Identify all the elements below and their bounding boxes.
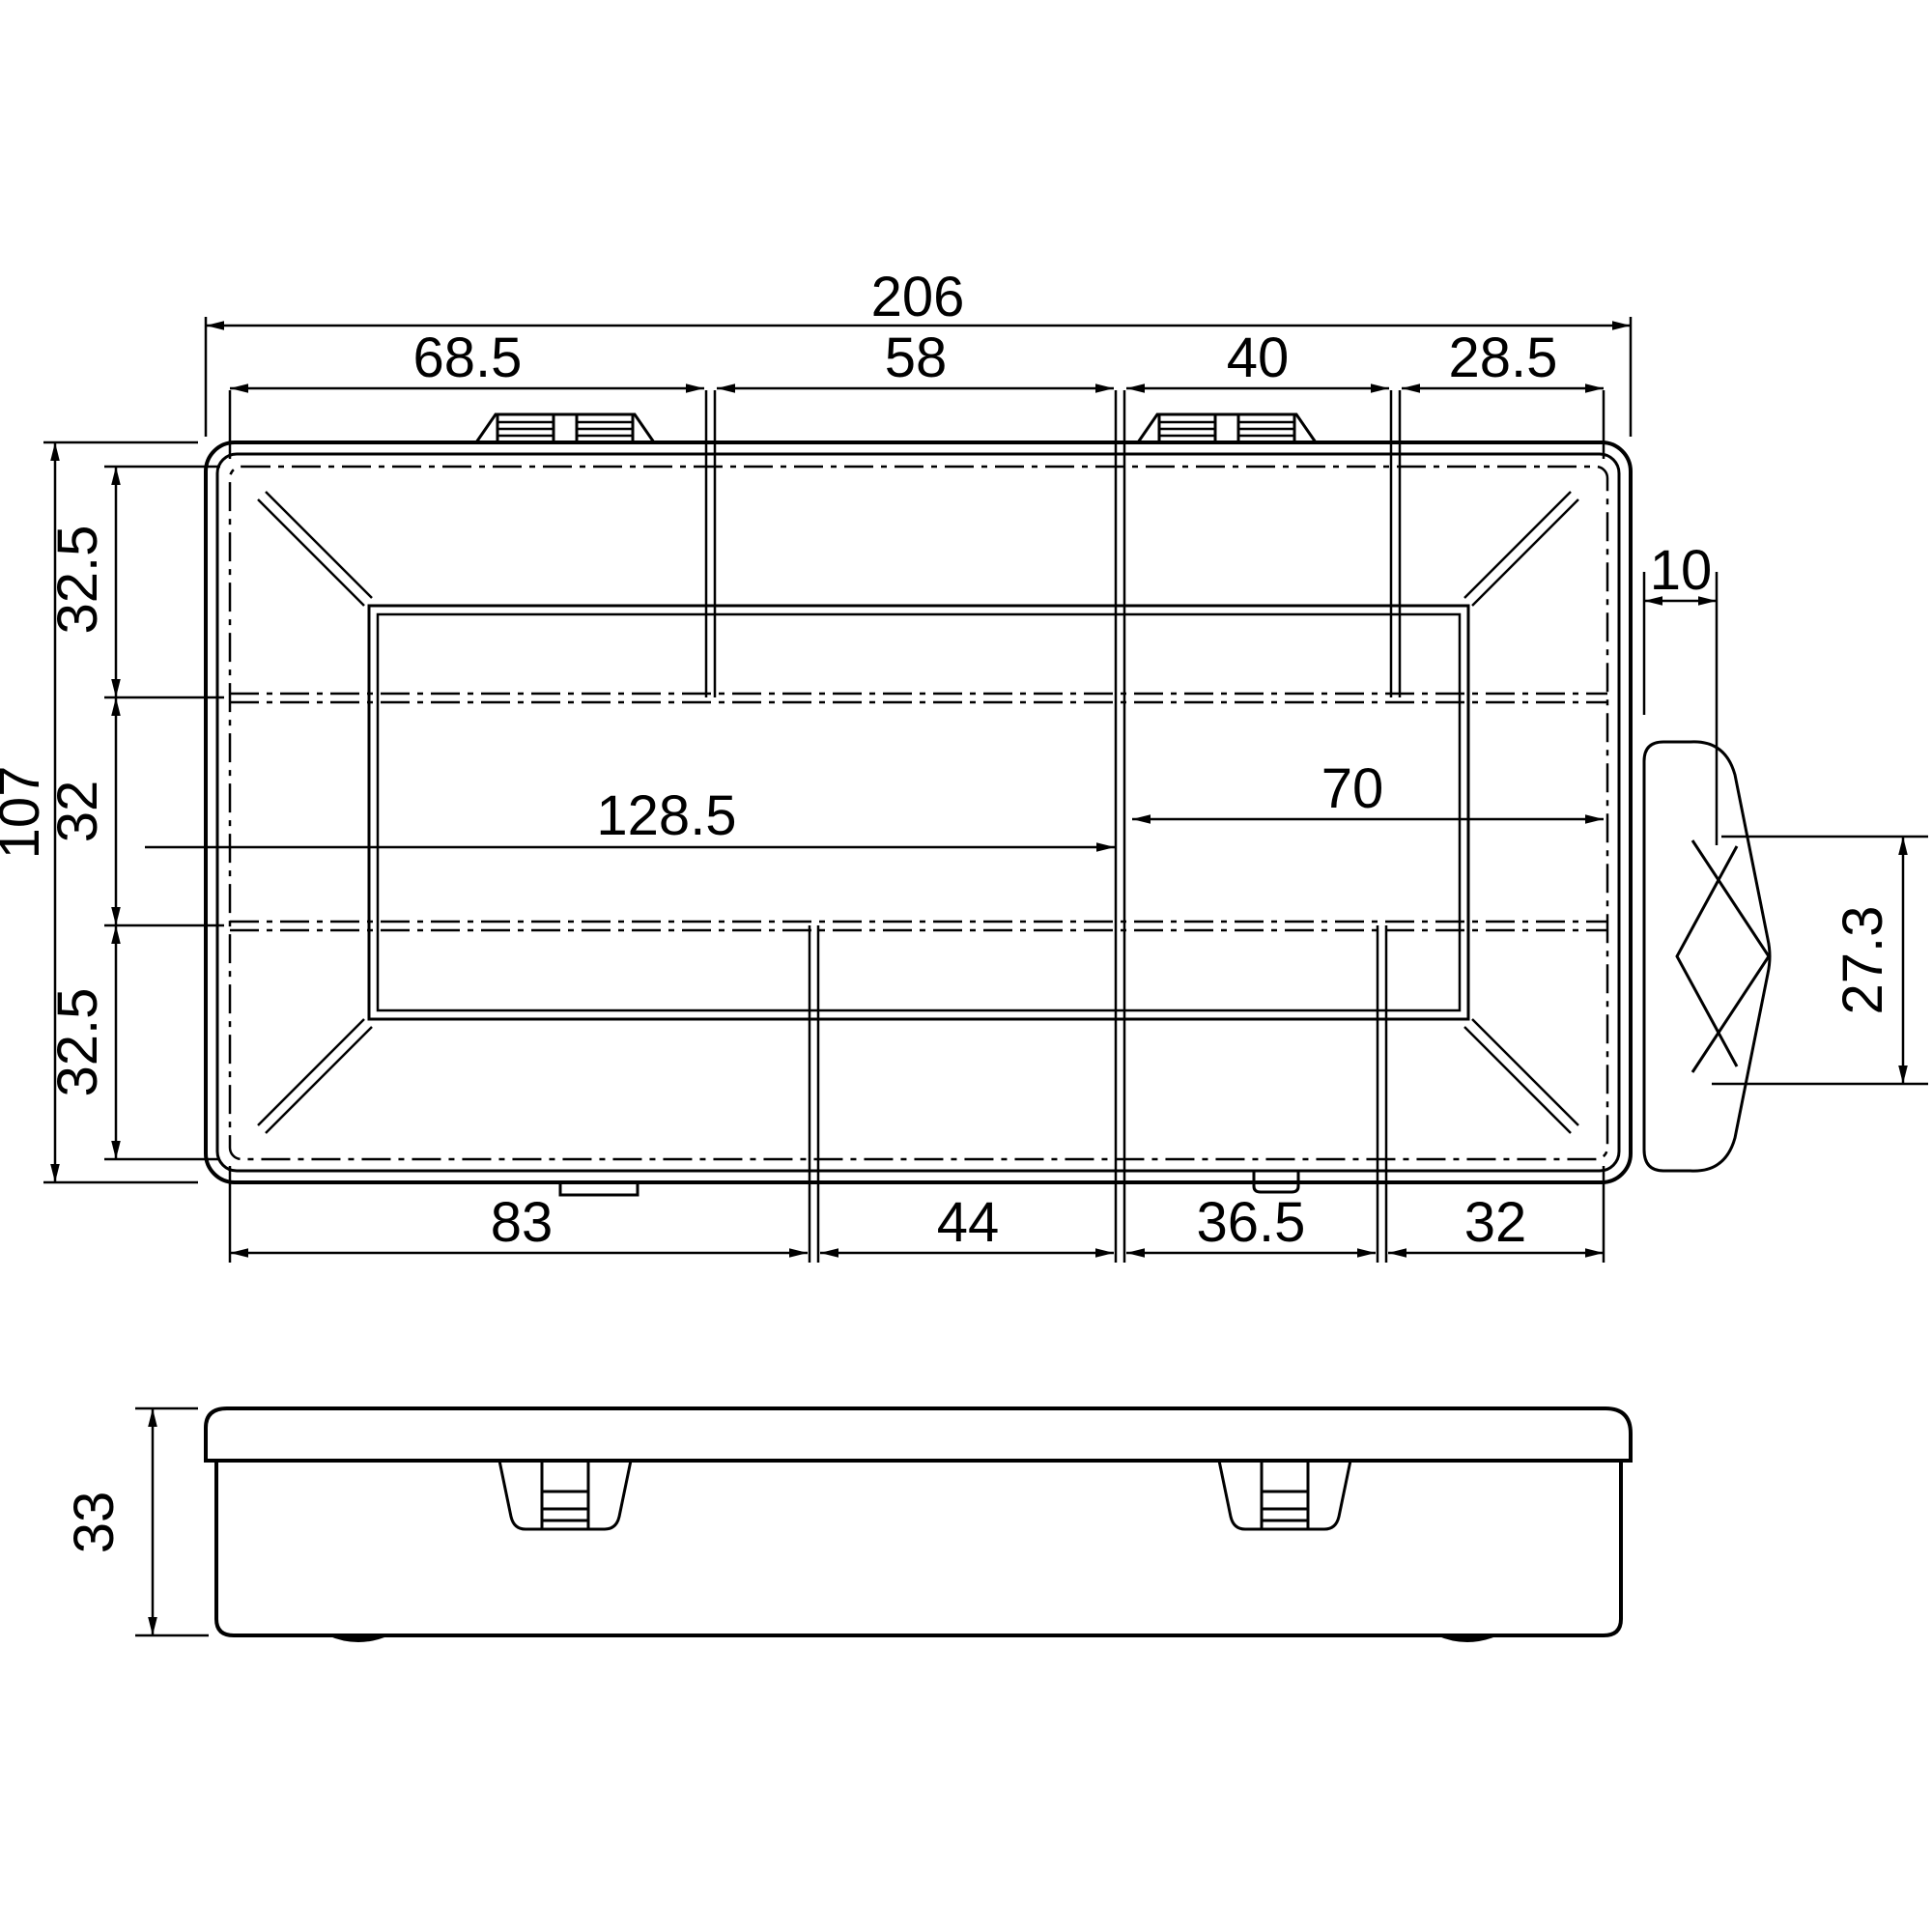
tray-floor-outline xyxy=(369,606,1468,1019)
dim-inner-width-right: 70 xyxy=(1132,757,1604,820)
dim-label-seg-40: 40 xyxy=(1227,327,1290,389)
box-lid-inner-outline xyxy=(217,454,1619,1171)
dimensions-top-view: 206 68.5 58 40 28.5 32.5 32 32.5 xyxy=(0,266,1928,1263)
dim-left-segments: 32.5 32 32.5 xyxy=(46,467,224,1159)
dim-label-seg-44: 44 xyxy=(937,1191,1000,1254)
dim-label-latch-depth: 10 xyxy=(1650,539,1713,602)
dim-label-seg-365: 36.5 xyxy=(1197,1191,1306,1254)
box-outer-outline xyxy=(206,442,1631,1182)
dim-latch-depth: 10 xyxy=(1644,539,1717,845)
dim-inner-width-left: 128.5 xyxy=(145,784,1115,847)
side-view: 33 xyxy=(63,1408,1631,1642)
dim-label-box-height: 33 xyxy=(63,1492,126,1554)
foot-left xyxy=(327,1635,389,1642)
side-clip-right xyxy=(1219,1461,1350,1529)
dim-label-seg-32: 32 xyxy=(1464,1191,1527,1254)
dim-box-height: 33 xyxy=(63,1408,209,1635)
lid-latch-top-right xyxy=(1138,414,1316,442)
lid-latch-top-left xyxy=(476,414,654,442)
side-body-outline xyxy=(216,1461,1621,1635)
dim-latch-height: 27.3 xyxy=(1712,837,1928,1084)
tray-floor-inner-outline xyxy=(378,614,1460,1010)
column-divider-lines xyxy=(706,390,1400,1263)
dim-label-seg-685: 68.5 xyxy=(413,327,523,389)
dim-label-total-depth: 107 xyxy=(0,766,51,860)
dim-label-seg-58: 58 xyxy=(885,327,948,389)
row-divider-hidden-lines xyxy=(230,694,1607,930)
side-clip-left xyxy=(499,1461,631,1529)
dim-label-inner-right: 70 xyxy=(1321,757,1384,820)
dim-label-inner-left: 128.5 xyxy=(596,784,736,847)
technical-drawing: 206 68.5 58 40 28.5 32.5 32 32.5 xyxy=(0,0,1932,1932)
side-lid-outline xyxy=(206,1408,1631,1461)
dim-label-seg-83: 83 xyxy=(491,1191,554,1254)
drawing-sheet: 206 68.5 58 40 28.5 32.5 32 32.5 xyxy=(0,0,1932,1932)
dim-label-latch-height: 27.3 xyxy=(1832,906,1894,1015)
top-view xyxy=(206,390,1770,1263)
dim-top-segments: 68.5 58 40 28.5 xyxy=(230,327,1604,459)
dim-label-seg-285: 28.5 xyxy=(1449,327,1558,389)
dim-label-total-width: 206 xyxy=(871,266,965,328)
foot-right xyxy=(1436,1635,1498,1642)
side-latch-handle xyxy=(1644,742,1770,1171)
